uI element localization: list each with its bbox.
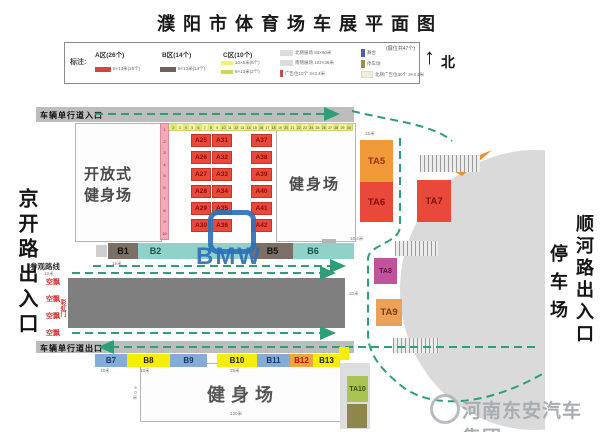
legend-item-north-field: 北侧展场 83×60米: [280, 50, 331, 56]
stage-swatch: [361, 49, 365, 57]
booth-b12: B12: [290, 354, 313, 367]
booth-a39: A39: [251, 168, 272, 181]
dim-field-height: 40米: [132, 385, 138, 400]
zone-c-desc-2: 8×13米(2个): [235, 69, 260, 75]
legend-item-south-field: 南侧展场 102×35米: [280, 60, 334, 66]
south-field-swatch: [280, 60, 293, 66]
legend-zone-b-name: B区(14个): [162, 49, 191, 59]
stage-label: 舞台: [367, 50, 376, 56]
booth-a31: A31: [212, 134, 232, 147]
stair-hatch-2: [395, 241, 438, 256]
booth-ta7: TA7: [417, 180, 451, 222]
stair-hatch-1: [420, 155, 480, 172]
fitness-right-label: 健身场: [289, 173, 340, 194]
small-gray-block-left: [96, 245, 107, 257]
legend-zone-b-swatch-row: 8×13米(14个): [160, 66, 205, 72]
parking-swatch: [361, 60, 365, 68]
top-ad-cell-30: 30: [346, 124, 352, 130]
road-top-entry-label: 车辆单行道入口: [40, 110, 103, 121]
legend-total-note: (展位共47个): [386, 45, 415, 52]
left-ad-cell-2: 2: [161, 136, 168, 148]
booth-a34: A34: [212, 185, 232, 198]
booth-ta8: TA8: [374, 258, 397, 284]
left-ad-cell-3: 3: [161, 147, 168, 159]
company-watermark-text: 河南东安汽车集团: [462, 396, 600, 432]
dim-field-bottom: 120米: [230, 411, 242, 417]
legend-zone-c-name: C区(10个): [223, 49, 252, 59]
zone-b-swatch: [160, 67, 176, 72]
left-ad-cell-1: 1: [161, 124, 168, 136]
page-title: 濮阳市体育场车展平面图: [0, 10, 600, 36]
left-ad-cell-9: 9: [161, 216, 168, 228]
zone-c-swatch-2: [221, 70, 233, 74]
company-logo-icon: [430, 394, 460, 424]
bmw-watermark-text: BMW: [196, 243, 262, 271]
dim-b6: 15.4米: [350, 236, 363, 242]
booth-a29: A29: [191, 202, 211, 215]
ad-label: 广告位10个 3×3.4米: [285, 71, 325, 77]
zone-b-desc: 8×13米(14个): [178, 66, 205, 72]
legend-box: 标注: (展位共47个) A区(26个) 8×13米(26个) B区(14个) …: [64, 42, 420, 84]
dim-b10: 35米: [230, 368, 240, 374]
booth-a40: A40: [251, 185, 272, 198]
booth-b6: B6: [293, 243, 333, 259]
rainbow-gate-label: 彩虹门: [58, 299, 67, 317]
small-yellow-block: [339, 347, 349, 360]
balloon-label-1: 空飘: [46, 277, 60, 287]
gate-right-label: 顺河路出入口: [571, 214, 597, 346]
zone-c-desc-1: 10×5米(8个): [235, 60, 260, 66]
booth-b10: B10: [217, 354, 257, 367]
booth-a41: A41: [251, 202, 272, 215]
main-exhibition-stage: [68, 278, 345, 328]
north-arrow-icon: ↑: [424, 44, 435, 70]
booth-b2: B2: [138, 243, 173, 259]
parking-olive-block: [347, 404, 367, 428]
booth-a28: A28: [191, 185, 211, 198]
dim-b7: 18米: [100, 368, 110, 374]
south-field-label: 南侧展场 102×35米: [295, 60, 334, 66]
booth-b8: B8: [127, 354, 170, 367]
legend-zone-a-swatch-row: 8×13米(26个): [95, 66, 140, 72]
road-bottom-exit-label: 车辆单行道出口: [40, 343, 103, 354]
left-ad-cell-4: 4: [161, 159, 168, 171]
booth-b9: B9: [170, 354, 207, 367]
open-fitness-label: 开放式健身场: [84, 163, 134, 205]
booth-a33: A33: [212, 168, 232, 181]
north-field-label: 北侧展场 83×60米: [295, 50, 331, 56]
legend-zone-a-name: A区(26个): [95, 49, 124, 59]
booth-b11: B11: [257, 354, 290, 367]
stair-hatch-3: [393, 338, 439, 353]
zone-a-desc: 8×13米(26个): [113, 66, 140, 72]
booth-ta6: TA6: [360, 182, 393, 222]
top-ad-number-strip: 1234567891011121314151617181920212223242…: [163, 123, 353, 131]
booth-a25: A25: [191, 134, 211, 147]
dim-ta5: 15米: [365, 131, 375, 137]
dim-route: 12米: [44, 271, 54, 277]
fitness-bottom-label: 健身场: [207, 381, 279, 407]
booth-b1: B1: [108, 243, 138, 259]
booth-a26: A26: [191, 151, 211, 164]
floorplan-canvas: 濮阳市体育场车展平面图 标注: (展位共47个) A区(26个) 8×13米(2…: [0, 0, 600, 432]
zone-a-swatch: [95, 67, 111, 72]
north-field-swatch: [280, 50, 293, 56]
legend-item-ad: 广告位10个 3×3.4米: [280, 70, 325, 77]
legend-zone-c-swatch-row-1: 10×5米(8个): [221, 60, 260, 66]
north-ad-swatch: [361, 71, 373, 78]
booth-a32: A32: [212, 151, 232, 164]
ad-swatch: [280, 70, 283, 77]
zone-c-swatch-1: [221, 61, 233, 65]
legend-item-north-ad: 北侧广告位30个 3×3.4米: [361, 71, 424, 78]
legend-item-stage: 舞台: [361, 49, 376, 57]
left-ad-cell-7: 7: [161, 193, 168, 205]
parking-area-label: 停车场: [545, 244, 571, 328]
legend-heading: 标注:: [70, 57, 86, 67]
left-ad-cell-5: 5: [161, 170, 168, 182]
dim-b8: 18米: [140, 368, 150, 374]
north-label: 北: [441, 52, 455, 72]
balloon-label-4: 空飘: [46, 328, 60, 338]
north-ad-label: 北侧广告位30个 3×3.4米: [375, 72, 424, 78]
dim-ta9: 10米: [349, 291, 359, 297]
parking-label: 停车场: [367, 61, 381, 67]
booth-ta9: TA9: [376, 299, 402, 326]
booth-b13: B13: [313, 354, 340, 367]
booth-a37: A37: [251, 134, 272, 147]
legend-item-parking: 停车场: [361, 60, 381, 68]
left-ad-cell-10: 10: [161, 228, 168, 240]
booth-ta10: TA10: [347, 376, 368, 402]
booth-b7: B7: [95, 354, 127, 367]
booth-ta5: TA5: [360, 140, 393, 182]
dim-b1: 15米: [112, 261, 122, 267]
booth-a27: A27: [191, 168, 211, 181]
left-ad-cell-6: 6: [161, 182, 168, 194]
legend-zone-c-swatch-row-2: 8×13米(2个): [221, 69, 260, 75]
booth-a38: A38: [251, 151, 272, 164]
left-ad-number-strip: 12345678910: [160, 123, 169, 240]
left-ad-cell-8: 8: [161, 205, 168, 217]
